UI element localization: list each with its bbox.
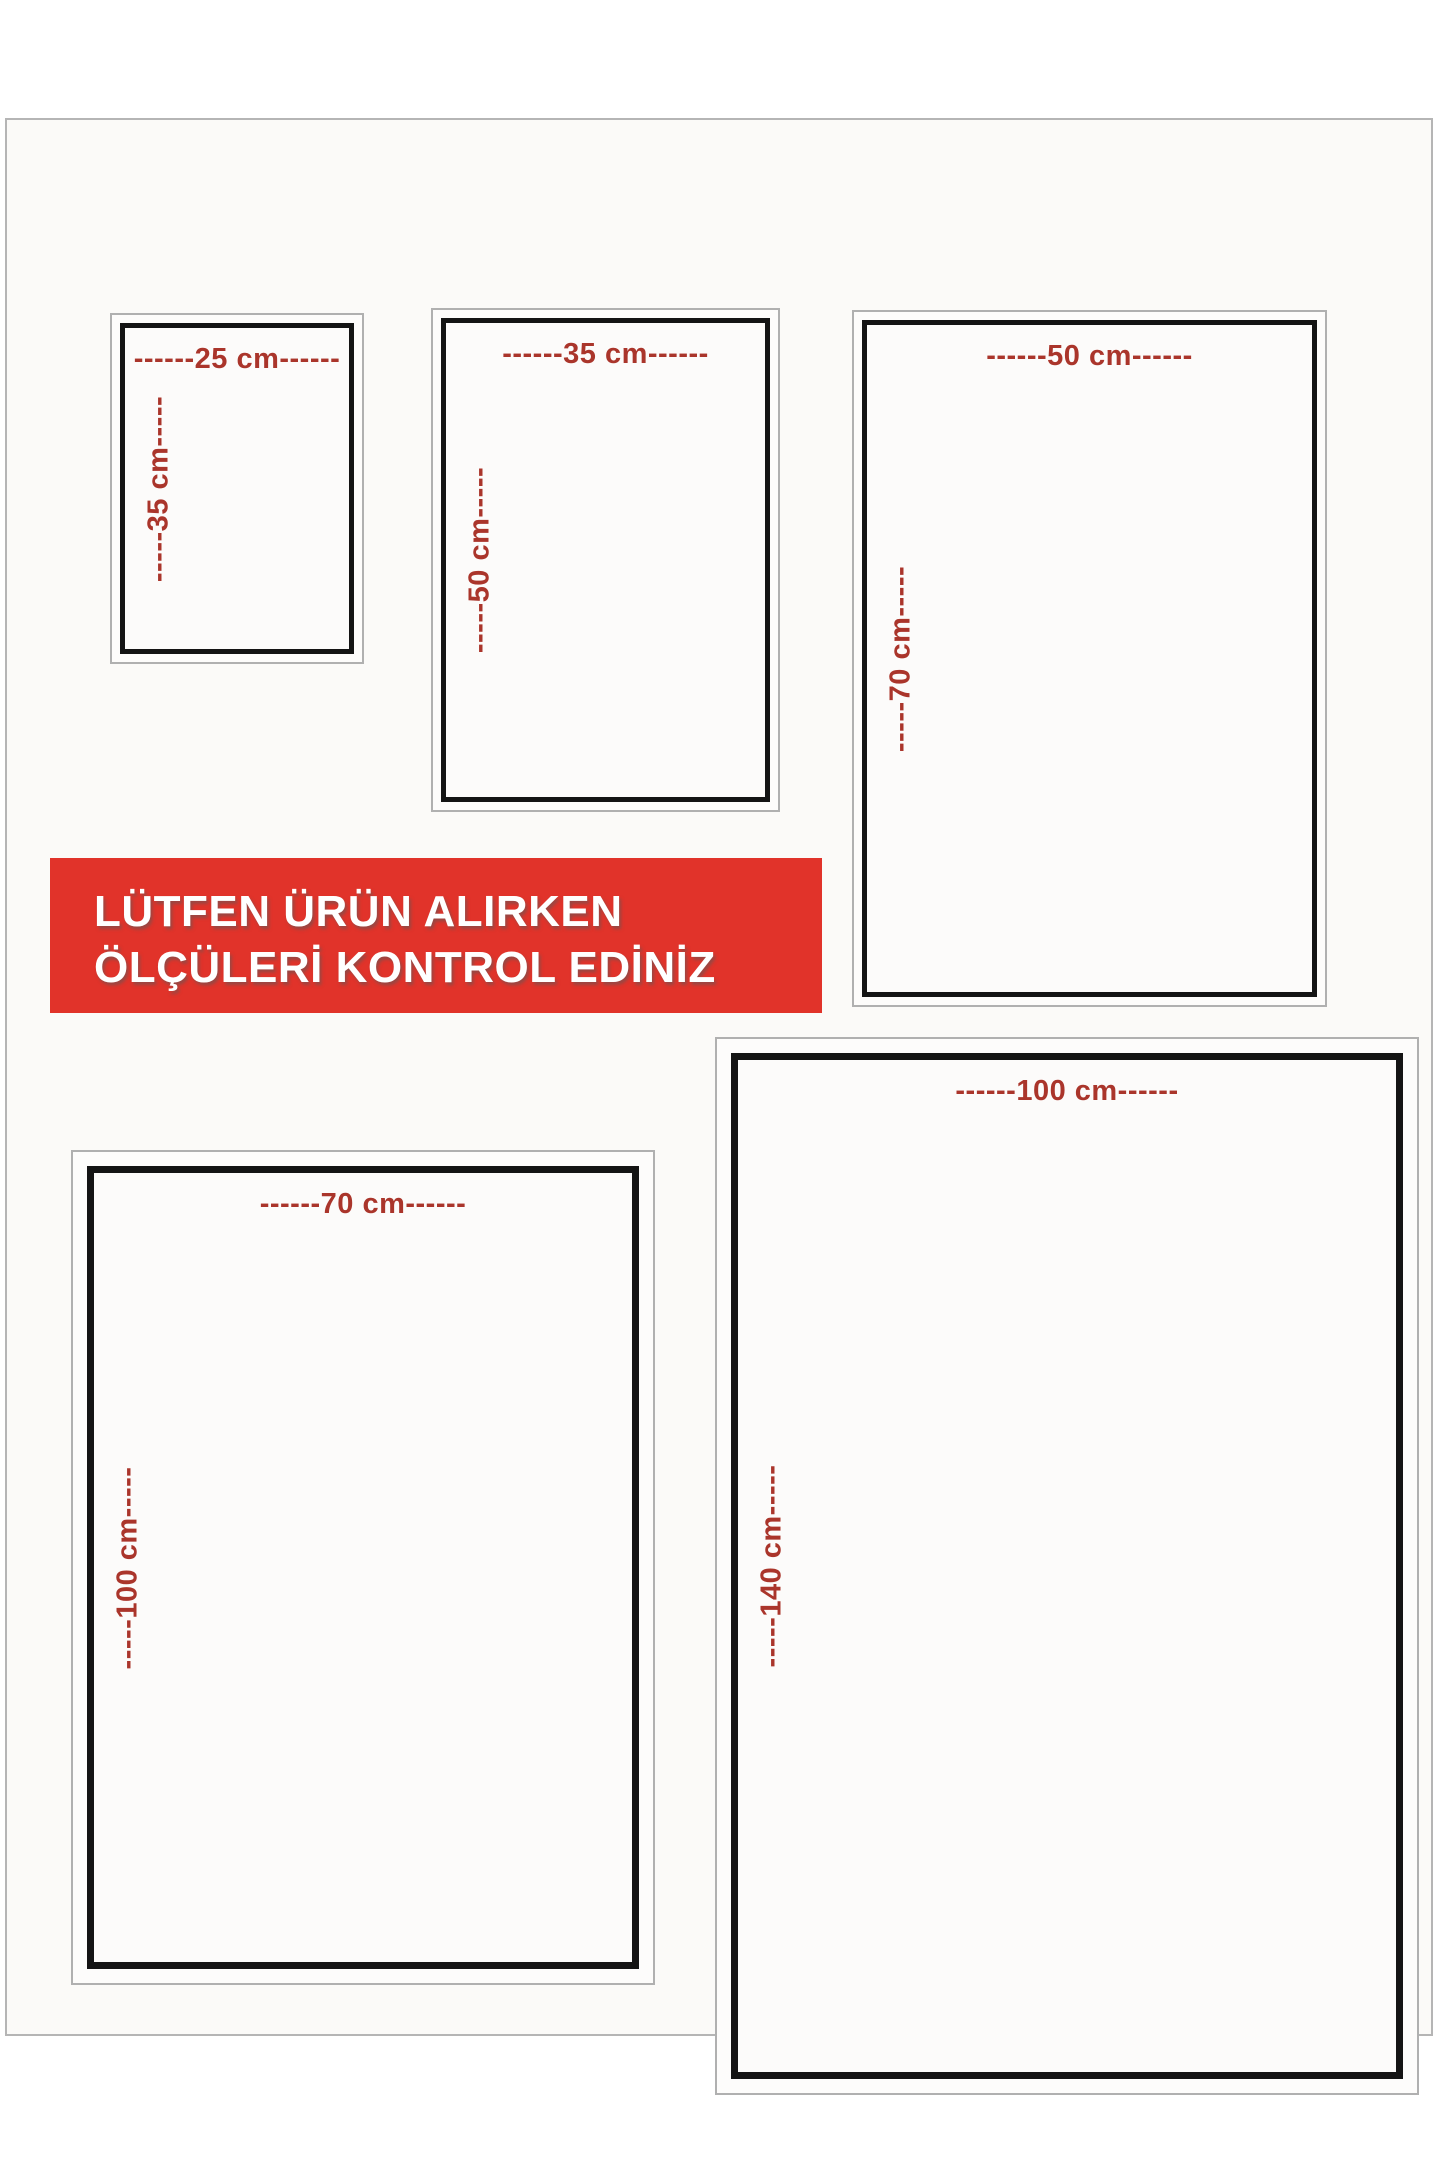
- height-dimension-label: -----140 cm-----: [756, 1465, 789, 1668]
- width-dimension-label: ------70 cm------: [94, 1188, 632, 1221]
- size-box-50x70: ------50 cm------ -----70 cm-----: [852, 310, 1327, 1007]
- width-dimension-label: ------35 cm------: [446, 338, 765, 371]
- size-box-100x140-frame: ------100 cm------ -----140 cm-----: [731, 1053, 1403, 2079]
- warning-banner-line2: ÖLÇÜLERİ KONTROL EDİNİZ: [94, 940, 802, 996]
- warning-banner: LÜTFEN ÜRÜN ALIRKEN ÖLÇÜLERİ KONTROL EDİ…: [50, 858, 822, 1013]
- height-dimension-label: -----100 cm-----: [112, 1466, 145, 1669]
- size-box-100x140: ------100 cm------ -----140 cm-----: [715, 1037, 1419, 2095]
- width-dimension-label: ------50 cm------: [867, 340, 1312, 373]
- height-dimension-label: -----35 cm-----: [143, 395, 176, 581]
- width-dimension-label: ------25 cm------: [125, 343, 349, 376]
- height-dimension-label: -----70 cm-----: [885, 565, 918, 751]
- size-box-25x35: ------25 cm------ -----35 cm-----: [110, 313, 364, 664]
- size-box-70x100: ------70 cm------ -----100 cm-----: [71, 1150, 655, 1985]
- size-box-50x70-frame: ------50 cm------ -----70 cm-----: [862, 320, 1317, 997]
- size-guide-page: ------25 cm------ -----35 cm----- ------…: [5, 118, 1433, 2036]
- warning-banner-line1: LÜTFEN ÜRÜN ALIRKEN: [94, 884, 802, 940]
- size-box-70x100-frame: ------70 cm------ -----100 cm-----: [87, 1166, 639, 1969]
- size-box-25x35-frame: ------25 cm------ -----35 cm-----: [120, 323, 354, 654]
- width-dimension-label: ------100 cm------: [738, 1075, 1396, 1108]
- size-box-35x50: ------35 cm------ -----50 cm-----: [431, 308, 780, 812]
- size-box-35x50-frame: ------35 cm------ -----50 cm-----: [441, 318, 770, 802]
- height-dimension-label: -----50 cm-----: [464, 467, 497, 653]
